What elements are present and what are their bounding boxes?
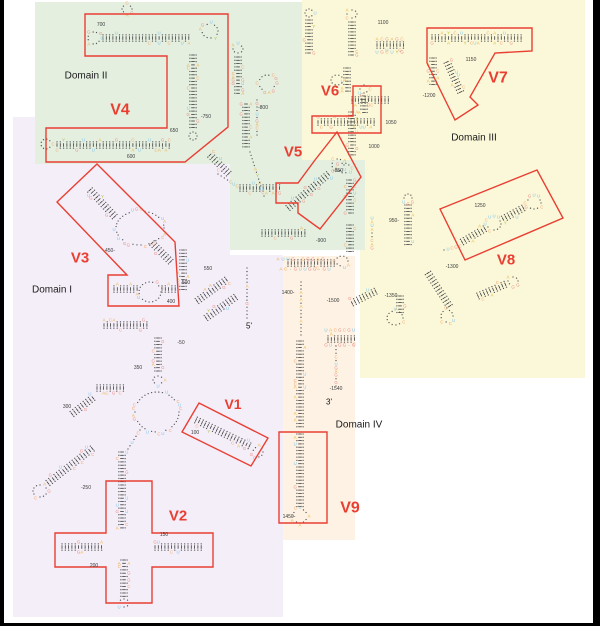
svg-text:U: U bbox=[116, 502, 119, 507]
svg-text:C: C bbox=[196, 76, 199, 81]
svg-text:U: U bbox=[131, 207, 134, 212]
svg-text:C: C bbox=[370, 102, 373, 107]
svg-text:C: C bbox=[212, 149, 215, 154]
svg-text:A: A bbox=[300, 290, 303, 295]
svg-text:A: A bbox=[276, 257, 279, 262]
svg-text:U: U bbox=[88, 392, 91, 397]
svg-text:C: C bbox=[454, 31, 457, 36]
svg-text:C: C bbox=[540, 205, 543, 210]
svg-text:A: A bbox=[347, 263, 350, 268]
svg-text:C: C bbox=[488, 228, 491, 233]
v-region-label-V2: V2 bbox=[169, 508, 187, 525]
svg-text:G: G bbox=[338, 343, 342, 348]
svg-text:C: C bbox=[169, 428, 172, 433]
svg-text:U: U bbox=[492, 214, 495, 219]
svg-text:C: C bbox=[481, 297, 484, 302]
svg-text:A: A bbox=[308, 514, 311, 519]
svg-text:U: U bbox=[165, 389, 168, 394]
svg-text:C: C bbox=[148, 40, 151, 45]
svg-text:A: A bbox=[272, 190, 275, 195]
svg-text:C: C bbox=[105, 390, 108, 395]
svg-text:C: C bbox=[436, 69, 439, 74]
domain-label-1: Domain I bbox=[32, 285, 72, 296]
svg-text:A: A bbox=[112, 318, 115, 323]
svg-text:G: G bbox=[400, 50, 404, 55]
rna-secondary-structure-map: UCUUCUAAACCCUGGCYGUUAGACUUCAGACCUCCCAGGG… bbox=[0, 0, 600, 626]
svg-text:G: G bbox=[385, 37, 389, 42]
svg-text:C: C bbox=[168, 138, 171, 143]
svg-text:C: C bbox=[118, 564, 121, 569]
svg-text:U: U bbox=[352, 328, 355, 333]
svg-text:C: C bbox=[344, 242, 347, 247]
svg-text:A: A bbox=[103, 318, 106, 323]
svg-text:U: U bbox=[294, 461, 297, 466]
svg-text:A: A bbox=[300, 297, 303, 302]
svg-text:C: C bbox=[440, 320, 443, 325]
v-region-label-V9: V9 bbox=[340, 500, 360, 517]
svg-text:U: U bbox=[187, 105, 190, 110]
svg-text:U: U bbox=[125, 496, 128, 501]
svg-text:C: C bbox=[235, 184, 238, 189]
position-marker: 450- bbox=[105, 248, 115, 254]
svg-text:G: G bbox=[380, 50, 384, 55]
svg-text:U: U bbox=[125, 509, 128, 514]
svg-text:U: U bbox=[327, 267, 330, 272]
svg-text:C: C bbox=[261, 190, 264, 195]
svg-text:A: A bbox=[316, 257, 319, 262]
svg-text:C: C bbox=[274, 235, 277, 240]
svg-text:C: C bbox=[157, 431, 160, 436]
svg-text:C: C bbox=[152, 349, 155, 354]
position-marker: 1250 bbox=[474, 203, 485, 209]
v-region-label-V6: V6 bbox=[321, 83, 339, 100]
svg-text:U: U bbox=[247, 438, 250, 443]
svg-text:U: U bbox=[210, 20, 213, 25]
svg-text:C: C bbox=[217, 168, 220, 173]
position-marker: -800 bbox=[258, 105, 268, 111]
frame-bar-0 bbox=[0, 0, 4, 626]
svg-text:C: C bbox=[51, 142, 54, 147]
svg-text:C: C bbox=[462, 85, 465, 90]
svg-text:C: C bbox=[241, 64, 244, 69]
svg-text:A: A bbox=[258, 181, 261, 186]
svg-text:C: C bbox=[136, 431, 139, 436]
svg-text:C: C bbox=[125, 522, 128, 527]
svg-text:G: G bbox=[311, 257, 315, 262]
svg-text:C: C bbox=[152, 242, 155, 247]
svg-text:U: U bbox=[113, 227, 116, 232]
svg-text:U: U bbox=[313, 11, 316, 16]
svg-text:A: A bbox=[209, 283, 212, 288]
svg-text:C: C bbox=[127, 584, 130, 589]
svg-text:A: A bbox=[390, 37, 393, 42]
position-marker: 700 bbox=[97, 22, 106, 28]
svg-text:U: U bbox=[236, 41, 239, 46]
svg-text:A: A bbox=[300, 318, 303, 323]
svg-text:C: C bbox=[131, 138, 134, 143]
svg-text:C: C bbox=[496, 280, 499, 285]
svg-text:A: A bbox=[186, 274, 189, 279]
svg-text:U: U bbox=[452, 318, 455, 323]
svg-text:A: A bbox=[237, 443, 240, 448]
svg-text:G: G bbox=[352, 343, 356, 348]
svg-text:U: U bbox=[115, 31, 118, 36]
svg-text:C: C bbox=[449, 321, 452, 326]
svg-text:A: A bbox=[196, 62, 199, 67]
svg-text:A: A bbox=[232, 42, 235, 47]
svg-text:U: U bbox=[537, 194, 540, 199]
svg-text:A: A bbox=[167, 282, 170, 287]
v-region-label-V1: V1 bbox=[224, 396, 241, 412]
svg-text:A: A bbox=[164, 378, 167, 383]
position-marker: 400 bbox=[167, 299, 176, 305]
svg-text:Y: Y bbox=[312, 24, 315, 29]
svg-text:A: A bbox=[395, 307, 398, 312]
svg-text:G: G bbox=[395, 37, 399, 42]
svg-text:U: U bbox=[343, 167, 346, 172]
svg-text:A: A bbox=[249, 135, 252, 140]
svg-text:A: A bbox=[126, 13, 129, 18]
position-marker: 1450- bbox=[283, 514, 296, 520]
svg-text:C: C bbox=[500, 40, 503, 45]
svg-text:A: A bbox=[329, 328, 332, 333]
svg-text:G: G bbox=[313, 267, 317, 272]
svg-text:C: C bbox=[255, 126, 258, 131]
svg-text:U: U bbox=[294, 441, 297, 446]
v-region-label-V8: V8 bbox=[497, 252, 515, 269]
svg-text:A: A bbox=[294, 395, 297, 400]
svg-text:C: C bbox=[332, 259, 335, 264]
svg-text:A: A bbox=[294, 435, 297, 440]
svg-text:C: C bbox=[355, 119, 358, 124]
svg-text:A: A bbox=[131, 147, 134, 152]
position-marker: 650 bbox=[170, 128, 179, 134]
svg-text:A: A bbox=[375, 37, 378, 42]
svg-text:G: G bbox=[338, 328, 342, 333]
svg-text:U: U bbox=[181, 40, 184, 45]
svg-text:U: U bbox=[226, 306, 229, 311]
svg-text:U: U bbox=[303, 267, 306, 272]
svg-text:U: U bbox=[457, 73, 460, 78]
svg-text:G: G bbox=[324, 343, 328, 348]
svg-text:A: A bbox=[254, 166, 257, 171]
svg-text:U: U bbox=[532, 193, 535, 198]
svg-text:C: C bbox=[294, 506, 297, 511]
svg-text:A: A bbox=[369, 124, 372, 129]
position-marker: 1050 bbox=[385, 120, 396, 126]
svg-text:Y: Y bbox=[62, 138, 65, 143]
position-marker: -1350 bbox=[385, 293, 398, 299]
svg-text:A: A bbox=[152, 362, 155, 367]
svg-text:U: U bbox=[298, 505, 301, 510]
svg-text:C: C bbox=[187, 66, 190, 71]
svg-text:U: U bbox=[82, 138, 85, 143]
position-marker: 1000 bbox=[368, 144, 379, 150]
svg-text:C: C bbox=[444, 306, 447, 311]
svg-text:U: U bbox=[186, 257, 189, 262]
position-marker: -1300 bbox=[446, 264, 459, 270]
frame-bar-1 bbox=[593, 0, 600, 626]
position-marker: -850 bbox=[333, 168, 343, 174]
svg-text:C: C bbox=[368, 87, 371, 92]
svg-text:C: C bbox=[231, 440, 234, 445]
position-marker: 1100 bbox=[378, 20, 389, 26]
svg-text:C: C bbox=[34, 495, 37, 500]
svg-text:C: C bbox=[523, 201, 526, 206]
svg-text:U: U bbox=[219, 156, 222, 161]
position-marker: 350 bbox=[134, 365, 143, 371]
svg-text:C: C bbox=[187, 86, 190, 91]
svg-text:U: U bbox=[446, 247, 449, 252]
svg-text:U: U bbox=[460, 31, 463, 36]
svg-text:U: U bbox=[137, 295, 140, 300]
svg-text:A: A bbox=[43, 482, 46, 487]
svg-text:A: A bbox=[371, 227, 374, 232]
svg-text:U: U bbox=[59, 465, 62, 470]
svg-text:U: U bbox=[177, 549, 180, 554]
svg-text:C: C bbox=[344, 184, 347, 189]
svg-text:U: U bbox=[130, 440, 133, 445]
domain-label-2: Domain II bbox=[65, 71, 108, 82]
svg-text:A: A bbox=[132, 413, 135, 418]
svg-text:A: A bbox=[477, 40, 480, 45]
svg-text:C: C bbox=[116, 456, 119, 461]
svg-text:G: G bbox=[347, 328, 351, 333]
svg-text:U: U bbox=[148, 138, 151, 143]
svg-text:C: C bbox=[195, 423, 198, 428]
svg-text:U: U bbox=[343, 265, 346, 270]
svg-text:C: C bbox=[81, 460, 84, 465]
svg-text:A: A bbox=[411, 212, 414, 217]
svg-text:A: A bbox=[158, 147, 161, 152]
svg-text:U: U bbox=[324, 328, 327, 333]
svg-text:U: U bbox=[117, 605, 120, 610]
svg-text:A: A bbox=[303, 345, 306, 350]
svg-text:A: A bbox=[203, 287, 206, 292]
svg-text:A: A bbox=[341, 89, 344, 94]
v-region-label-V5: V5 bbox=[284, 144, 302, 161]
position-marker: 100 bbox=[191, 430, 200, 436]
svg-text:U: U bbox=[303, 372, 306, 377]
svg-text:A: A bbox=[300, 304, 303, 309]
svg-text:U: U bbox=[156, 384, 159, 389]
svg-text:A: A bbox=[440, 31, 443, 36]
svg-text:U: U bbox=[363, 124, 366, 129]
svg-text:G: G bbox=[308, 267, 312, 272]
position-marker: 200 bbox=[90, 563, 99, 569]
svg-text:A: A bbox=[491, 293, 494, 298]
svg-text:A: A bbox=[343, 158, 346, 163]
svg-text:A: A bbox=[294, 411, 297, 416]
svg-text:A: A bbox=[98, 138, 101, 143]
svg-text:U: U bbox=[349, 170, 352, 175]
svg-text:U: U bbox=[125, 450, 128, 455]
svg-text:A: A bbox=[493, 40, 496, 45]
svg-text:C: C bbox=[228, 281, 231, 286]
svg-text:C: C bbox=[125, 1, 128, 6]
svg-text:C: C bbox=[320, 124, 323, 129]
svg-text:A: A bbox=[346, 7, 349, 12]
svg-text:Y: Y bbox=[256, 173, 259, 178]
svg-text:C: C bbox=[119, 327, 122, 332]
svg-text:G: G bbox=[321, 257, 325, 262]
svg-text:U: U bbox=[92, 147, 95, 152]
svg-text:C: C bbox=[161, 286, 164, 291]
position-marker: -1540 bbox=[330, 386, 343, 392]
three-prime-label: 3' bbox=[326, 398, 332, 407]
svg-text:C: C bbox=[487, 31, 490, 36]
svg-text:U: U bbox=[138, 147, 141, 152]
svg-text:G: G bbox=[291, 257, 295, 262]
svg-text:A: A bbox=[354, 102, 357, 107]
svg-text:U: U bbox=[497, 215, 500, 220]
svg-text:U: U bbox=[158, 31, 161, 36]
rna-structure-canvas: UCUUCUAAACCCUGGCYGUUAGACUUCAGACCUCCCAGGG… bbox=[0, 0, 600, 626]
position-marker: -900 bbox=[316, 238, 326, 244]
svg-text:U: U bbox=[411, 239, 414, 244]
svg-text:C: C bbox=[161, 235, 164, 240]
svg-text:C: C bbox=[353, 197, 356, 202]
svg-text:U: U bbox=[100, 36, 103, 41]
svg-text:A: A bbox=[300, 226, 303, 231]
svg-text:A: A bbox=[268, 90, 271, 95]
svg-text:U: U bbox=[241, 81, 244, 86]
svg-text:A: A bbox=[87, 42, 90, 47]
position-marker: 1400- bbox=[282, 290, 295, 296]
svg-text:A: A bbox=[436, 75, 439, 80]
svg-text:C: C bbox=[91, 452, 94, 457]
svg-text:Y: Y bbox=[504, 221, 507, 226]
position-marker: 300 bbox=[63, 404, 72, 410]
svg-text:C: C bbox=[144, 244, 147, 249]
svg-text:C: C bbox=[73, 466, 76, 471]
svg-text:A: A bbox=[129, 282, 132, 287]
position-marker: -750 bbox=[201, 114, 211, 120]
svg-text:A: A bbox=[472, 239, 475, 244]
svg-text:U: U bbox=[515, 214, 518, 219]
svg-text:Y: Y bbox=[447, 31, 450, 36]
svg-text:C: C bbox=[248, 190, 251, 195]
svg-text:C: C bbox=[167, 40, 170, 45]
svg-text:A: A bbox=[116, 282, 119, 287]
svg-text:U: U bbox=[303, 385, 306, 390]
svg-text:A: A bbox=[187, 40, 190, 45]
domain-label-4: Domain IV bbox=[336, 420, 383, 431]
svg-text:U: U bbox=[503, 31, 506, 36]
svg-text:U: U bbox=[85, 444, 88, 449]
svg-text:A: A bbox=[427, 79, 430, 84]
svg-text:U: U bbox=[117, 236, 120, 241]
svg-text:A: A bbox=[279, 267, 282, 272]
position-marker: -1200 bbox=[423, 93, 436, 99]
svg-text:U: U bbox=[358, 91, 361, 96]
svg-text:Y: Y bbox=[464, 40, 467, 45]
svg-text:U: U bbox=[252, 181, 255, 186]
svg-text:C: C bbox=[55, 147, 58, 152]
svg-text:A: A bbox=[241, 91, 244, 96]
svg-text:U: U bbox=[366, 287, 369, 292]
position-marker: 500 bbox=[182, 280, 191, 286]
svg-text:A: A bbox=[164, 147, 167, 152]
svg-text:U: U bbox=[146, 430, 149, 435]
svg-text:U: U bbox=[286, 257, 289, 262]
svg-text:C: C bbox=[294, 358, 297, 363]
svg-text:U: U bbox=[330, 175, 333, 180]
svg-text:C: C bbox=[345, 16, 348, 21]
svg-text:U: U bbox=[375, 50, 378, 55]
svg-text:U: U bbox=[402, 200, 405, 205]
svg-text:A: A bbox=[294, 385, 297, 390]
svg-text:U: U bbox=[291, 195, 294, 200]
v-region-label-V3: V3 bbox=[71, 250, 89, 267]
svg-text:Y: Y bbox=[207, 429, 210, 434]
position-marker: 600 bbox=[127, 154, 136, 160]
svg-text:C: C bbox=[331, 156, 334, 161]
svg-text:A: A bbox=[116, 525, 119, 530]
svg-text:U: U bbox=[255, 112, 258, 117]
svg-text:U: U bbox=[329, 343, 332, 348]
svg-text:Y: Y bbox=[207, 308, 210, 313]
svg-text:U: U bbox=[314, 176, 317, 181]
position-marker: -250 bbox=[81, 485, 91, 491]
svg-text:A: A bbox=[451, 83, 454, 88]
svg-text:A: A bbox=[127, 561, 130, 566]
svg-text:A: A bbox=[507, 274, 510, 279]
position-marker: -1500 bbox=[327, 298, 340, 304]
svg-text:A: A bbox=[493, 31, 496, 36]
svg-text:A: A bbox=[246, 283, 249, 288]
svg-text:U: U bbox=[488, 215, 491, 220]
svg-text:A: A bbox=[258, 443, 261, 448]
svg-text:A: A bbox=[355, 110, 358, 115]
svg-text:A: A bbox=[80, 549, 83, 554]
position-marker: 950- bbox=[389, 218, 399, 224]
svg-text:C: C bbox=[334, 354, 337, 359]
svg-text:G: G bbox=[322, 267, 326, 272]
svg-text:A: A bbox=[294, 418, 297, 423]
svg-text:G: G bbox=[294, 267, 298, 272]
svg-text:C: C bbox=[402, 320, 405, 325]
position-marker: 150 bbox=[160, 532, 169, 538]
svg-text:C: C bbox=[450, 246, 453, 251]
svg-text:A: A bbox=[447, 40, 450, 45]
svg-text:G: G bbox=[343, 343, 347, 348]
svg-text:U: U bbox=[157, 540, 160, 545]
svg-text:A: A bbox=[478, 224, 481, 229]
svg-text:G: G bbox=[306, 257, 310, 262]
svg-text:C: C bbox=[133, 402, 136, 407]
position-marker: 1150 bbox=[466, 57, 477, 63]
svg-text:A: A bbox=[344, 78, 347, 83]
svg-text:C: C bbox=[119, 390, 122, 395]
svg-text:A: A bbox=[100, 540, 103, 545]
svg-text:U: U bbox=[299, 267, 302, 272]
svg-text:A: A bbox=[265, 190, 268, 195]
position-marker: -50 bbox=[177, 340, 184, 346]
svg-text:U: U bbox=[158, 40, 161, 45]
svg-text:C: C bbox=[179, 406, 182, 411]
svg-text:Y: Y bbox=[214, 36, 217, 41]
svg-text:C: C bbox=[353, 226, 356, 231]
svg-text:C: C bbox=[249, 125, 252, 130]
svg-text:C: C bbox=[255, 81, 258, 86]
svg-text:U: U bbox=[390, 50, 393, 55]
svg-text:U: U bbox=[281, 257, 284, 262]
svg-text:Y: Y bbox=[101, 194, 104, 199]
svg-text:U: U bbox=[161, 431, 164, 436]
v-region-label-V4: V4 bbox=[110, 102, 130, 119]
domain-label-3: Domain III bbox=[451, 133, 497, 144]
